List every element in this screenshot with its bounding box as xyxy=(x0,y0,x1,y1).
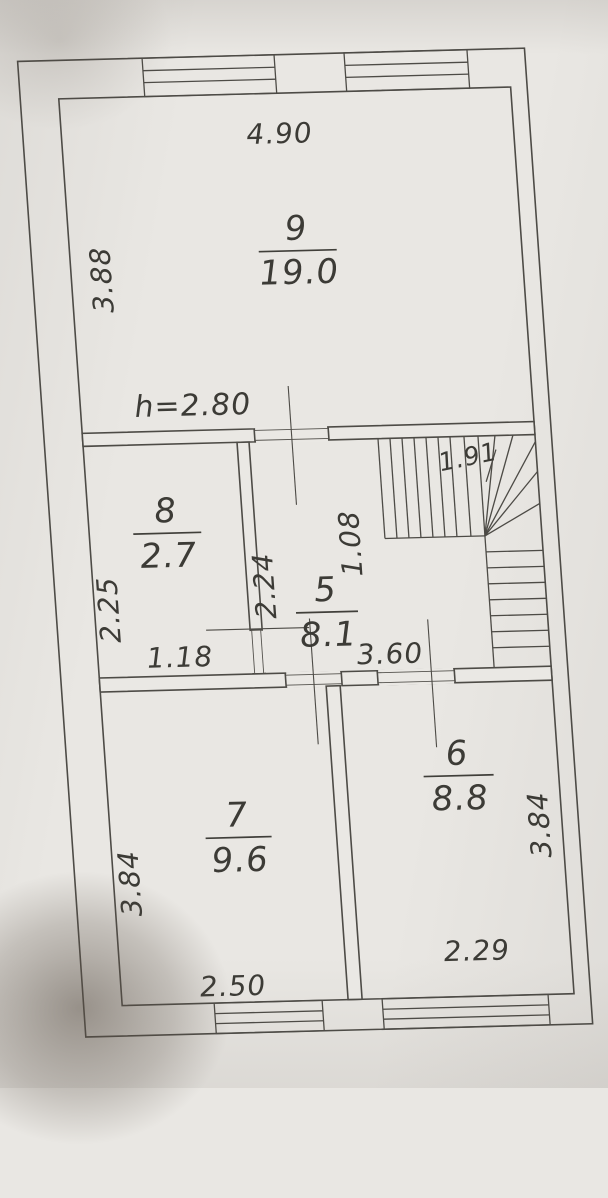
window-glazing-line xyxy=(384,1015,550,1019)
room-label-9: 9 19.0 xyxy=(255,208,341,294)
outer-wall-line xyxy=(18,48,593,1037)
room-label-5: 5 8.1 xyxy=(293,569,361,655)
fraction-bar xyxy=(206,837,272,839)
dim-room8-depth: 2.25 xyxy=(90,576,128,643)
door-jamb xyxy=(254,429,255,442)
room-number: 9 xyxy=(283,208,308,249)
floorplan-drawing: 4.90 3.88 9 19.0 h=2.80 8 2.7 2.25 1.18 … xyxy=(16,47,594,1039)
window-glazing-line xyxy=(345,62,468,65)
door-jamb xyxy=(341,672,342,686)
stair-winder-line xyxy=(483,503,542,535)
window xyxy=(382,994,550,1029)
room-number: 8 xyxy=(153,491,178,532)
fraction-bar xyxy=(133,532,201,534)
window xyxy=(344,50,470,92)
door-jamb xyxy=(285,673,286,687)
stair-flight-edge xyxy=(385,536,485,539)
stair-tread xyxy=(493,646,550,647)
fraction-bar xyxy=(424,775,494,777)
stair-tread xyxy=(390,438,397,538)
window xyxy=(142,55,277,97)
door-jamb xyxy=(377,671,378,685)
floorplan-photo: 4.90 3.88 9 19.0 h=2.80 8 2.7 2.25 1.18 … xyxy=(0,0,608,1088)
window-glazing-line xyxy=(383,1005,549,1009)
door-jamb xyxy=(328,427,329,440)
stair-tread xyxy=(489,598,546,599)
room-label-7: 7 9.6 xyxy=(203,795,275,882)
dim-room5-depth: 2.24 xyxy=(246,552,284,619)
door-leaf-room9-room5 xyxy=(288,386,296,505)
stair-tread xyxy=(426,437,433,537)
exterior-walls xyxy=(18,48,593,1037)
window-glazing-line xyxy=(346,74,469,77)
room-area: 19.0 xyxy=(258,252,340,294)
dim-room7-width: 2.50 xyxy=(199,969,268,1004)
dim-stair-width: 1.91 xyxy=(435,437,500,477)
stair-tread xyxy=(486,550,543,551)
room-area: 2.7 xyxy=(139,535,199,576)
dim-room7-depth: 3.84 xyxy=(111,850,149,917)
door-opening xyxy=(378,668,454,686)
room-label-6: 6 8.8 xyxy=(421,733,497,820)
dim-room5-width: 3.60 xyxy=(356,637,425,672)
ceiling-height-note: h=2.80 xyxy=(133,387,252,425)
room-area: 8.1 xyxy=(299,614,359,655)
door-jamb xyxy=(454,669,455,683)
window-glazing-line xyxy=(143,67,275,70)
door-opening xyxy=(249,631,267,673)
dim-room9-width: 4.90 xyxy=(245,116,314,151)
stair-tread xyxy=(402,438,409,538)
dim-room6-depth: 3.84 xyxy=(521,791,559,858)
labels: 4.90 3.88 9 19.0 h=2.80 8 2.7 2.25 1.18 … xyxy=(58,111,568,1005)
room-number: 6 xyxy=(444,733,469,774)
stair-tread xyxy=(492,630,549,631)
room-area: 9.6 xyxy=(210,840,270,881)
fraction-bar xyxy=(296,611,358,613)
stair-tread xyxy=(491,614,548,615)
stair-tread xyxy=(414,438,421,538)
window-glazing-line xyxy=(144,79,276,82)
room-number: 5 xyxy=(313,570,338,611)
windows-top xyxy=(142,50,470,97)
room-label-8: 8 2.7 xyxy=(130,490,204,577)
stair-tread xyxy=(488,582,545,583)
dim-stair-flight: 1.08 xyxy=(332,510,370,577)
dim-room8-width: 1.18 xyxy=(146,640,215,675)
room-area: 8.8 xyxy=(430,778,490,819)
window xyxy=(214,1000,324,1033)
window-glazing-line xyxy=(216,1021,324,1024)
dim-room6-width: 2.29 xyxy=(443,933,512,968)
floorplan-svg: 4.90 3.88 9 19.0 h=2.80 8 2.7 2.25 1.18 … xyxy=(16,47,594,1039)
stair-tread xyxy=(378,439,385,539)
room-number: 7 xyxy=(224,795,249,836)
window-glazing-line xyxy=(215,1011,323,1014)
dim-room9-depth: 3.88 xyxy=(83,246,121,313)
wall-room7-room6 xyxy=(326,686,362,1000)
stair-tread xyxy=(487,566,544,567)
